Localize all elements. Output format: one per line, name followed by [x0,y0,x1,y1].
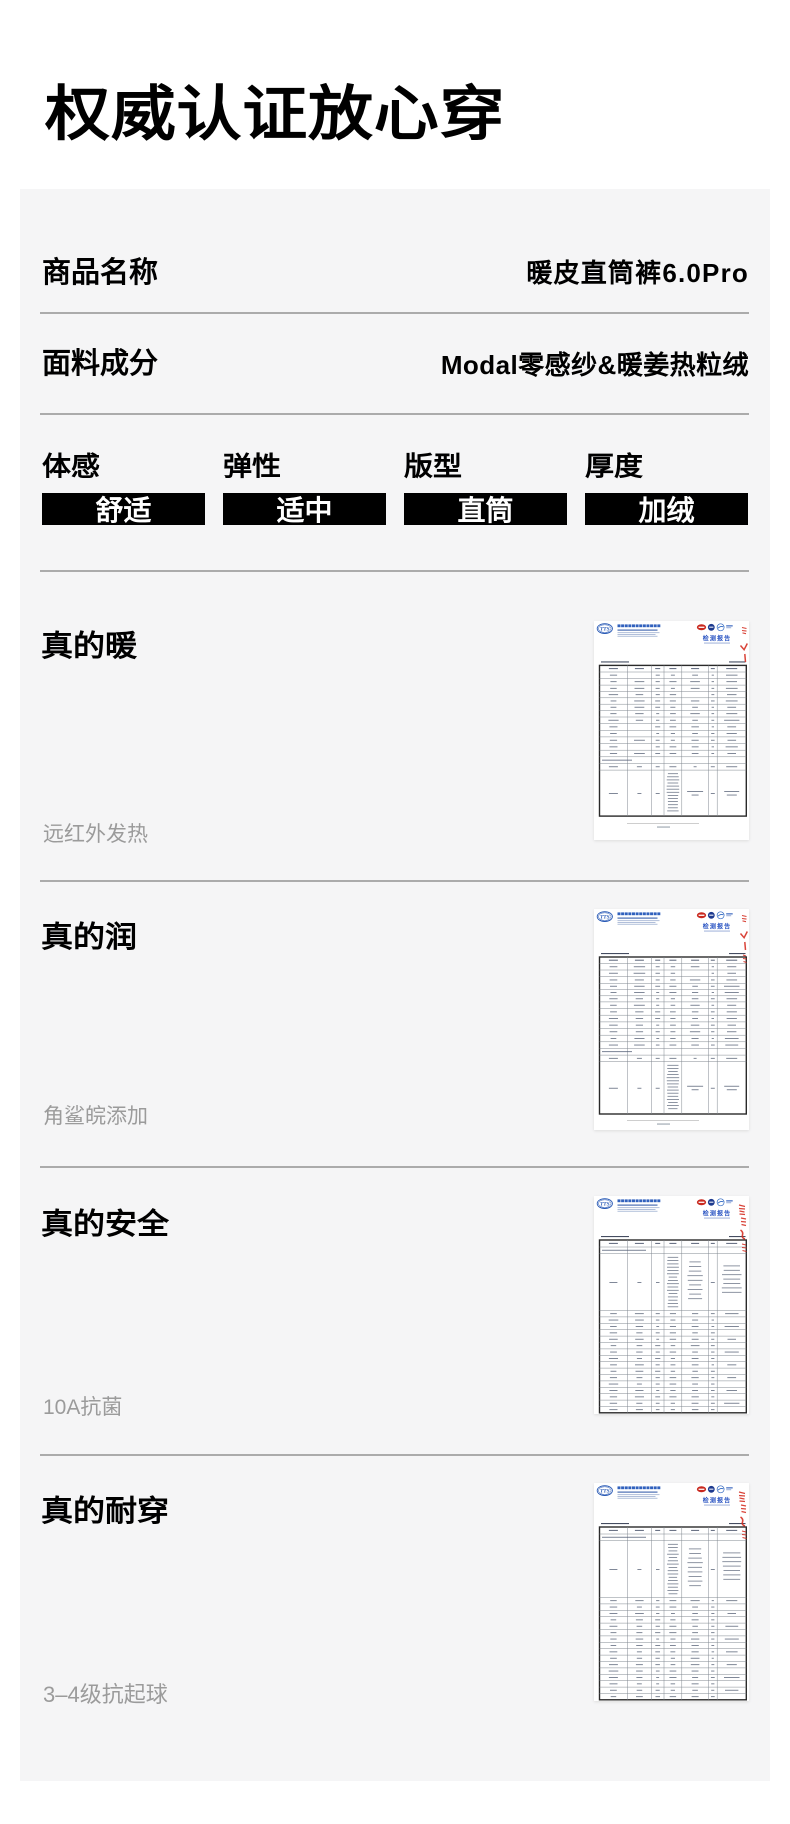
svg-text:检测报告: 检测报告 [703,1209,731,1217]
svg-text:TTS: TTS [600,1489,610,1495]
svg-text:检测报告: 检测报告 [703,922,731,930]
svg-text:TTS: TTS [600,915,610,921]
svg-text:检测报告: 检测报告 [703,1496,731,1504]
svg-text:TTS: TTS [600,627,610,633]
svg-text:检测报告: 检测报告 [703,634,731,642]
svg-text:TTS: TTS [600,1202,610,1208]
